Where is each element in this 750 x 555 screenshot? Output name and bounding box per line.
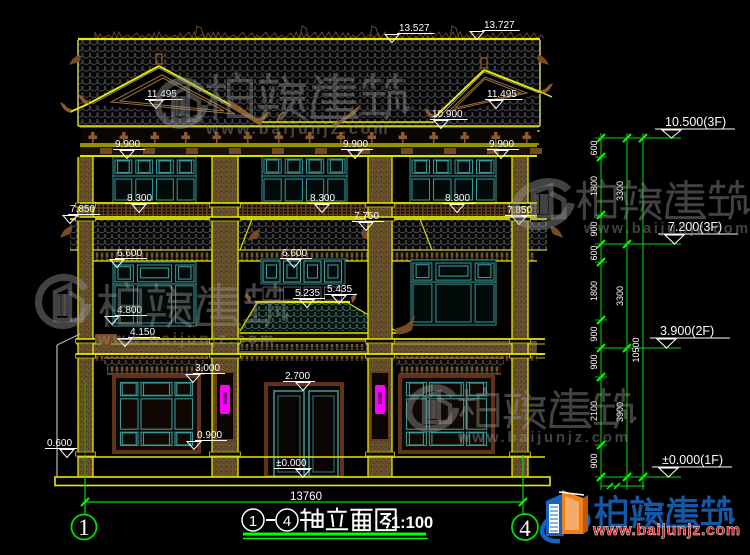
svg-text:9.900: 9.900 bbox=[115, 139, 140, 150]
svg-text:www.baijunjz.com: www.baijunjz.com bbox=[583, 221, 750, 237]
svg-text:8.300: 8.300 bbox=[127, 193, 152, 204]
svg-text:11.495: 11.495 bbox=[487, 89, 517, 100]
svg-text:13760: 13760 bbox=[290, 491, 322, 503]
svg-text:5.435: 5.435 bbox=[327, 284, 352, 295]
svg-text:8.300: 8.300 bbox=[445, 193, 470, 204]
svg-text:1:100: 1:100 bbox=[391, 514, 433, 532]
svg-text:0.900: 0.900 bbox=[197, 430, 222, 441]
svg-text:3300: 3300 bbox=[615, 286, 625, 306]
svg-text:10.500(3F): 10.500(3F) bbox=[665, 115, 726, 129]
svg-text:4: 4 bbox=[519, 516, 531, 541]
svg-text:2100: 2100 bbox=[589, 401, 599, 421]
svg-text:1: 1 bbox=[78, 515, 90, 540]
svg-text:www.baijunjz.com: www.baijunjz.com bbox=[457, 429, 631, 446]
svg-text:900: 900 bbox=[589, 354, 599, 369]
svg-text:6.600: 6.600 bbox=[117, 248, 142, 259]
svg-text:1: 1 bbox=[249, 513, 257, 530]
svg-text:10.900: 10.900 bbox=[432, 109, 463, 120]
svg-text:8.300: 8.300 bbox=[310, 193, 335, 204]
svg-text:www.baijunjz.com: www.baijunjz.com bbox=[205, 121, 391, 138]
svg-text:3.900(2F): 3.900(2F) bbox=[660, 324, 714, 338]
svg-text:13.527: 13.527 bbox=[399, 23, 430, 34]
svg-text:900: 900 bbox=[589, 453, 599, 468]
svg-text:900: 900 bbox=[589, 326, 599, 341]
svg-text:4: 4 bbox=[283, 513, 291, 530]
svg-text:13.727: 13.727 bbox=[484, 20, 515, 31]
svg-text:600: 600 bbox=[589, 245, 599, 260]
svg-text:6.600: 6.600 bbox=[282, 248, 307, 259]
svg-text:±0.000: ±0.000 bbox=[276, 458, 307, 469]
svg-text:3300: 3300 bbox=[615, 181, 625, 201]
svg-text:10500: 10500 bbox=[631, 337, 641, 362]
svg-text:7.750: 7.750 bbox=[354, 211, 379, 222]
svg-text:www.baijunjz.com: www.baijunjz.com bbox=[592, 522, 741, 539]
svg-text:7.850: 7.850 bbox=[70, 204, 95, 215]
svg-text:9.900: 9.900 bbox=[489, 139, 514, 150]
svg-text:2.700: 2.700 bbox=[285, 371, 310, 382]
svg-text:±0.000(1F): ±0.000(1F) bbox=[662, 453, 723, 467]
svg-text:600: 600 bbox=[589, 140, 599, 155]
svg-text:9.900: 9.900 bbox=[343, 139, 368, 150]
svg-text:0.600: 0.600 bbox=[47, 438, 72, 449]
svg-text:1800: 1800 bbox=[589, 281, 599, 301]
svg-text:5.235: 5.235 bbox=[295, 288, 320, 299]
svg-text:3.000: 3.000 bbox=[195, 363, 220, 374]
svg-text:www.baijunjz.com: www.baijunjz.com bbox=[97, 331, 277, 348]
